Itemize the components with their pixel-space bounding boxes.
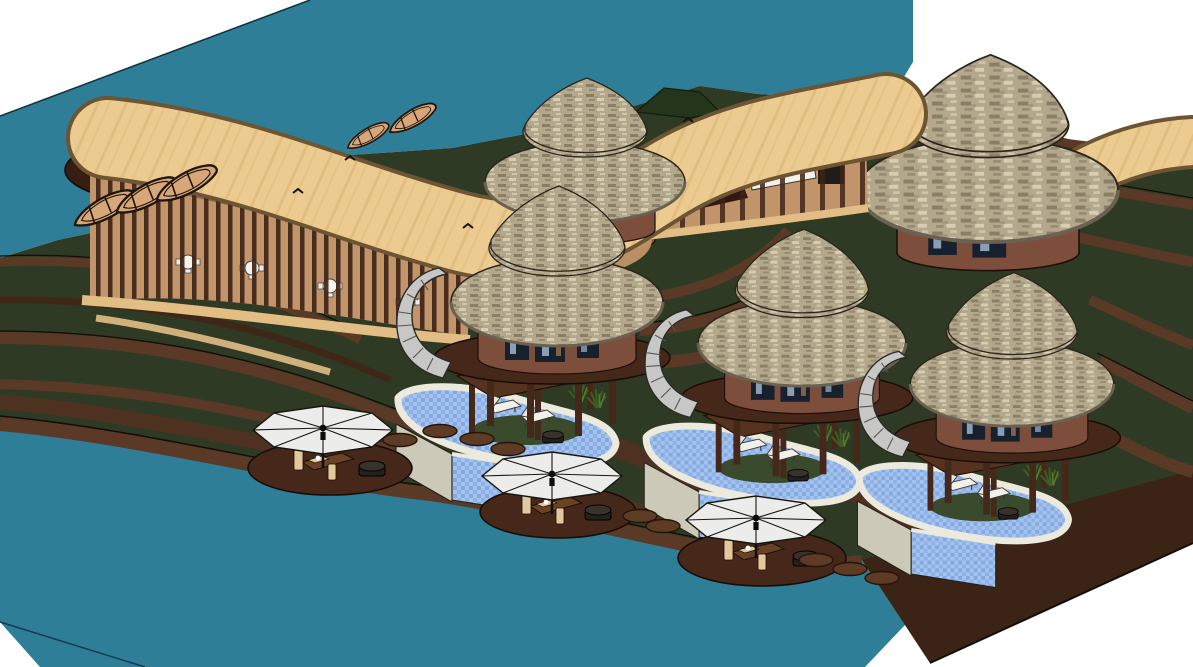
render-viewport: 3D axonometric render of a tropical reso…	[0, 0, 1193, 667]
resort-site-render: 3D axonometric render of a tropical reso…	[0, 0, 1193, 667]
